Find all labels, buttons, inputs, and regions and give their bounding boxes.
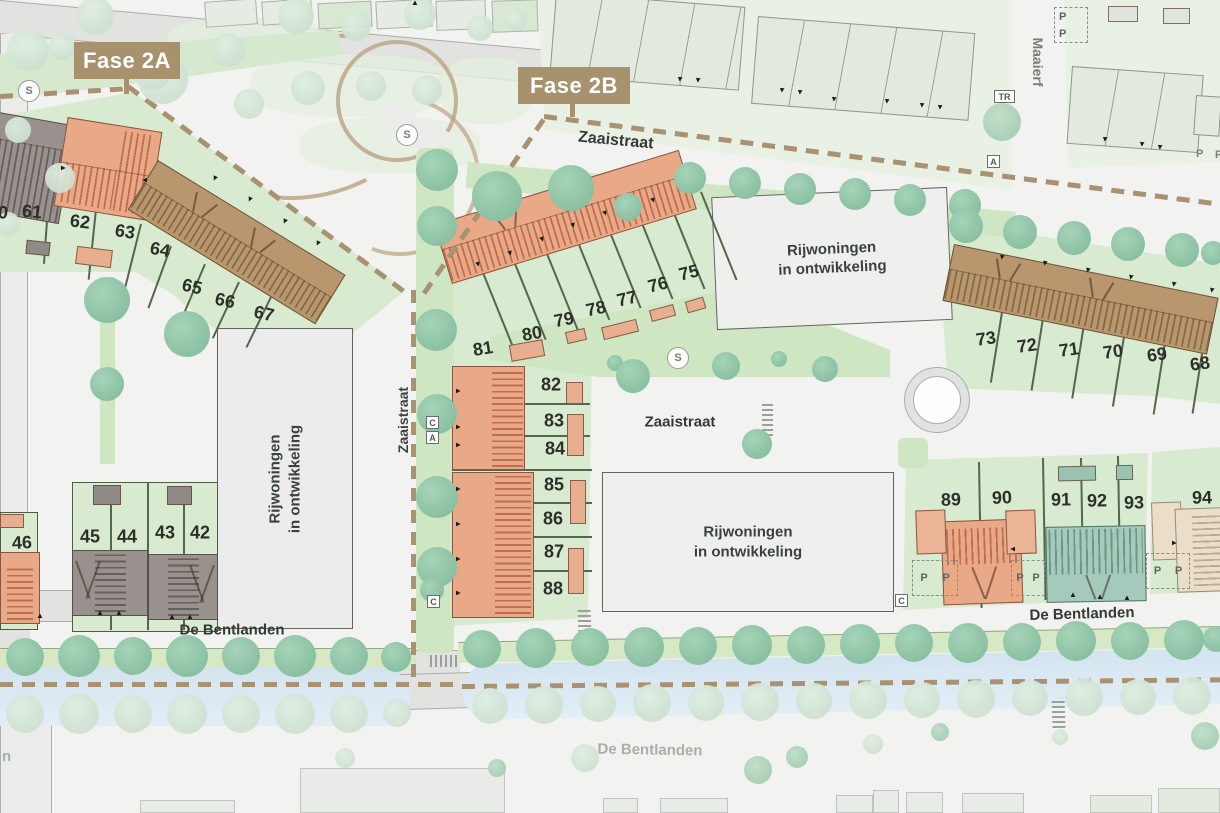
p-letter: P [920, 572, 927, 584]
phase-boundary-dashed [411, 290, 416, 686]
entrance-arrow-icon: ▲ [1169, 279, 1178, 288]
tree-icon [784, 173, 816, 205]
garden-shed [25, 240, 50, 256]
tree-icon [571, 744, 599, 772]
tree-icon [114, 695, 152, 733]
tree-icon [275, 694, 315, 734]
tree-icon [114, 637, 152, 675]
p-letter: P [1154, 565, 1161, 577]
building-parcel-lines [1194, 96, 1220, 136]
tree-icon [222, 695, 260, 733]
development-label-line1: Rijwoningen [694, 523, 802, 543]
existing-building [1193, 95, 1220, 137]
entrance-arrow-icon: ▲ [883, 97, 892, 106]
faded-building [140, 800, 235, 813]
entrance-arrow-icon: ▲ [796, 88, 805, 97]
tree-icon [167, 694, 207, 734]
entrance-arrow-icon: ▲ [454, 387, 462, 395]
fase-2b-badge: Fase 2B [518, 67, 630, 104]
plot-number[interactable]: 83 [544, 411, 564, 432]
tree-icon [488, 759, 506, 777]
garden-shed [570, 480, 586, 524]
plot-number[interactable]: 85 [544, 475, 564, 496]
plot-number[interactable]: 46 [12, 532, 33, 554]
roof-hatch [492, 369, 523, 467]
building-parcel-lines [1068, 67, 1203, 152]
tree-icon [416, 476, 458, 518]
letter-marker-C: C [895, 594, 908, 607]
tree-icon [274, 635, 316, 677]
house-roof [148, 554, 218, 620]
parking-p-box: PP [1146, 553, 1190, 589]
plot-number[interactable]: 71 [1058, 338, 1081, 362]
roof-gable-line [192, 192, 197, 212]
tree-icon [383, 699, 411, 727]
entrance-arrow-icon: ▲ [168, 613, 176, 621]
tree-icon [729, 167, 761, 199]
plot-number[interactable]: 90 [992, 487, 1013, 509]
entrance-arrow-icon: ▲ [59, 164, 67, 172]
development-label-line2: in ontwikkeling [285, 424, 305, 532]
letter-marker-A: A [426, 431, 439, 444]
tree-icon [948, 623, 988, 663]
p-letter: P [942, 572, 949, 584]
entrance-arrow-icon: ▲ [454, 423, 462, 431]
garden-shed [93, 485, 121, 505]
tree-icon [742, 429, 772, 459]
development-area-left: Rijwoningen in ontwikkeling [217, 328, 353, 629]
tree-icon [59, 694, 99, 734]
s-marker: S [396, 124, 418, 146]
tree-icon [712, 352, 740, 380]
entrance-arrow-icon: ▲ [694, 76, 703, 85]
faded-building [962, 793, 1024, 813]
p-letter: P [1016, 572, 1023, 584]
house-roof [915, 509, 947, 554]
plot-number[interactable]: 72 [1016, 334, 1039, 358]
roof-hatch [1048, 528, 1143, 574]
entrance-arrow-icon: ▲ [36, 612, 44, 620]
tree-icon [679, 627, 717, 665]
development-area-left-label: Rijwoningen in ontwikkeling [266, 424, 305, 532]
plot-number[interactable]: 89 [941, 489, 962, 511]
tree-icon [1191, 722, 1219, 750]
plot-number[interactable]: 73 [975, 327, 998, 351]
plot-number[interactable]: 80 [520, 322, 543, 346]
entrance-arrow-icon: ▲ [186, 613, 194, 621]
faded-building [603, 798, 638, 813]
entrance-arrow-icon: ▲ [778, 86, 787, 95]
tree-icon [895, 624, 933, 662]
tree-icon [6, 638, 44, 676]
plot-number[interactable]: 66 [213, 289, 237, 314]
tree-icon [957, 680, 995, 718]
entrance-arrow-icon: ▲ [454, 485, 462, 493]
development-area-top-label: Rijwoningen in ontwikkeling [777, 237, 887, 281]
plot-number[interactable]: 67 [252, 302, 276, 327]
entrance-arrow-icon: ▲ [1040, 258, 1049, 267]
plot-number[interactable]: 61 [21, 201, 43, 224]
plot-number[interactable]: 82 [541, 375, 561, 396]
development-label-line1: Rijwoningen [266, 424, 286, 532]
tree-icon [463, 630, 501, 668]
garden-shed [568, 548, 584, 594]
entrance-arrow-icon: ▲ [141, 176, 149, 184]
garden-shed [566, 382, 583, 404]
parking-p-box: PP [1011, 560, 1045, 596]
tree-icon [516, 628, 556, 668]
tree-icon [674, 162, 706, 194]
tree-icon [164, 311, 210, 357]
entrance-arrow-icon: ▲ [454, 555, 462, 563]
letter-marker-TR: TR [994, 90, 1015, 103]
entrance-arrow-icon: ▲ [411, 0, 419, 7]
tree-icon [1173, 677, 1211, 715]
tree-icon [624, 627, 664, 667]
tree-icon [5, 117, 31, 143]
tree-icon [330, 695, 368, 733]
tree-icon [58, 635, 100, 677]
tree-icon [1164, 620, 1204, 660]
street-label-maaierf: Maaierf [1030, 37, 1046, 86]
entrance-arrow-icon: ▲ [454, 520, 462, 528]
faded-building [836, 795, 873, 813]
tree-icon [1120, 679, 1156, 715]
roof-gable-line [1085, 575, 1096, 600]
development-label-line2: in ontwikkeling [694, 542, 802, 562]
existing-building [1067, 66, 1204, 153]
parking-p-box: PP [912, 560, 958, 596]
letter-marker-C: C [426, 416, 439, 429]
plot-number[interactable]: 93 [1124, 492, 1144, 513]
map-graphics-layer: ▲▲▲▲▲▲▲▲▲▲▲▲▲▲▲▲▲▲▲▲▲▲▲▲▲▲▲▲▲▲▲▲▲▲▲▲▲▲▲▲… [0, 0, 1220, 813]
entrance-arrow-icon: ▲ [1138, 140, 1147, 149]
plot-number[interactable]: 43 [155, 523, 175, 544]
tree-icon [90, 367, 124, 401]
tree-icon [894, 184, 926, 216]
tree-icon [1012, 680, 1048, 716]
roof-hatch [168, 558, 199, 616]
entrance-arrow-icon: ▲ [918, 101, 927, 110]
faded-building [1090, 795, 1152, 813]
p-letter: P [1215, 149, 1220, 161]
tree-icon [412, 75, 442, 105]
roof-gable-line [199, 565, 214, 603]
tree-icon [633, 684, 671, 722]
tree-icon [949, 209, 983, 243]
tree-icon [166, 635, 208, 677]
fase-2b-badge-label: Fase 2B [530, 73, 618, 99]
fase-2a-badge-stem [124, 79, 129, 94]
plot-number[interactable]: 69 [1146, 343, 1169, 367]
s-marker: S [18, 80, 40, 102]
plot-number[interactable]: 91 [1051, 489, 1071, 510]
development-area-bottom-label: Rijwoningen in ontwikkeling [694, 523, 802, 562]
fase-2b-badge-stem [570, 104, 575, 117]
tree-icon [1165, 233, 1199, 267]
tree-icon [571, 628, 609, 666]
tree-icon [904, 682, 940, 718]
tree-icon [688, 685, 724, 721]
garden-shed [0, 514, 24, 528]
plot-number[interactable]: 92 [1087, 490, 1107, 511]
roof-gable-line [1009, 263, 1021, 281]
tree-icon [7, 29, 49, 71]
s-marker: S [667, 347, 689, 369]
tree-icon [1052, 729, 1068, 745]
plot-number[interactable]: 68 [1189, 352, 1212, 376]
tree-icon [1056, 621, 1096, 661]
tree-icon [741, 683, 779, 721]
development-area-bottom: Rijwoningen in ontwikkeling [602, 472, 894, 612]
plot-number[interactable]: 88 [543, 579, 563, 600]
faded-building [906, 792, 943, 813]
entrance-arrow-icon: ▲ [96, 609, 104, 617]
site-plan-map: ▲▲▲▲▲▲▲▲▲▲▲▲▲▲▲▲▲▲▲▲▲▲▲▲▲▲▲▲▲▲▲▲▲▲▲▲▲▲▲▲… [0, 0, 1220, 813]
roof-gable-line [1089, 278, 1093, 298]
tree-icon [1003, 623, 1041, 661]
entrance-arrow-icon: ▲ [1069, 591, 1077, 599]
plot-number[interactable]: 94 [1192, 487, 1212, 508]
tree-icon [48, 32, 76, 60]
tree-icon [472, 688, 508, 724]
p-letter: P [1196, 148, 1203, 160]
tree-icon [983, 103, 1021, 141]
faded-building [300, 768, 505, 813]
roof-gable-line [201, 204, 218, 218]
tree-icon [467, 15, 493, 41]
tree-icon [1003, 215, 1037, 249]
road-maaierf [0, 722, 52, 813]
plot-number[interactable]: 77 [615, 287, 639, 312]
tree-icon [1201, 241, 1220, 265]
faded-parcel [204, 0, 258, 28]
plot-number[interactable]: 79 [552, 308, 576, 332]
p-letter: P [1059, 11, 1066, 23]
tree-icon [548, 165, 594, 211]
faded-building [660, 798, 728, 813]
roof-gable-line [250, 227, 255, 247]
garden-shed [1058, 466, 1096, 482]
tree-icon [525, 686, 563, 724]
tree-icon [416, 149, 458, 191]
plot-number[interactable]: 45 [80, 527, 100, 548]
garden-shed [167, 486, 192, 505]
tree-icon [771, 351, 787, 367]
garden-shed [567, 414, 584, 456]
plot-number[interactable]: 86 [543, 509, 563, 530]
faded-building [1158, 788, 1220, 813]
house-roof [0, 552, 40, 624]
street-label-zaaistraat-vertical: Zaaistraat [395, 387, 411, 453]
entrance-arrow-icon: ▲ [1123, 594, 1131, 602]
p-letter: P [1032, 572, 1039, 584]
entrance-arrow-icon: ▲ [1083, 265, 1092, 274]
tree-icon [335, 748, 355, 768]
entrance-arrow-icon: ▲ [1207, 285, 1216, 294]
entrance-arrow-icon: ▲ [936, 103, 945, 112]
entrance-arrow-icon: ▲ [1101, 135, 1110, 144]
garden-shed [1108, 6, 1138, 22]
tree-icon [812, 356, 838, 382]
tree-icon [614, 193, 642, 221]
tree-icon [356, 71, 386, 101]
roof-gable-line [971, 567, 985, 599]
tree-icon [222, 637, 260, 675]
turning-circle [913, 376, 961, 424]
tree-icon [211, 33, 245, 67]
tree-icon [505, 9, 527, 31]
fase-2a-badge-label: Fase 2A [83, 48, 171, 74]
letter-marker-A: A [987, 155, 1000, 168]
tree-icon [6, 695, 44, 733]
entrance-arrow-icon: ▲ [830, 95, 839, 104]
roof-hatch [495, 476, 532, 614]
plot-number[interactable]: 81 [471, 337, 494, 361]
street-label-fragment: n [2, 748, 11, 765]
faded-building [873, 790, 899, 813]
entrance-arrow-icon: ▲ [454, 441, 462, 449]
plot-number[interactable]: 70 [1102, 340, 1125, 364]
entrance-arrow-icon: ▲ [676, 75, 685, 84]
parking-p-box: PP [1054, 7, 1088, 43]
tree-icon [744, 756, 772, 784]
tree-icon [931, 723, 949, 741]
street-label-de-bentlanden-left: De Bentlanden [179, 622, 284, 639]
house-roof [452, 366, 525, 470]
plot-number[interactable]: 78 [584, 297, 608, 322]
tree-icon [84, 277, 130, 323]
entrance-arrow-icon: ▲ [1126, 272, 1135, 281]
tree-icon [787, 626, 825, 664]
entrance-arrow-icon: ▲ [1156, 143, 1165, 152]
street-label-zaaistraat-mid: Zaaistraat [645, 414, 716, 431]
tree-icon [1057, 221, 1091, 255]
p-letter: P [1175, 565, 1182, 577]
tree-icon [234, 89, 264, 119]
tree-icon [840, 624, 880, 664]
tree-icon [1111, 622, 1149, 660]
tree-icon [839, 178, 871, 210]
street-label-de-bentlanden-south: De Bentlanden [597, 741, 702, 760]
tree-icon [863, 734, 883, 754]
tree-icon [472, 171, 522, 221]
p-letter: P [1059, 28, 1066, 40]
tree-icon [1065, 678, 1103, 716]
street-label-de-bentlanden-right: De Bentlanden [1029, 604, 1134, 624]
development-label-line2: in ontwikkeling [778, 256, 887, 280]
entrance-arrow-icon: ▲ [454, 589, 462, 597]
plot-number[interactable]: 87 [544, 542, 564, 563]
entrance-arrow-icon: ▲ [1009, 545, 1017, 553]
tree-icon [616, 359, 650, 393]
roof-gable-line [1102, 282, 1114, 300]
plot-number[interactable]: 64 [148, 238, 172, 262]
tree-icon [849, 681, 887, 719]
plot-number[interactable]: 63 [113, 220, 136, 244]
fase-2a-badge: Fase 2A [74, 42, 180, 79]
plot-number[interactable]: 42 [190, 523, 210, 544]
entrance-arrow-icon: ▲ [1170, 539, 1178, 547]
entrance-arrow-icon: ▲ [1096, 593, 1104, 601]
tree-icon [732, 625, 772, 665]
letter-marker-C: C [427, 595, 440, 608]
house-roof [72, 550, 148, 616]
crosswalk [1051, 698, 1065, 728]
tree-icon [796, 683, 832, 719]
tree-icon [786, 746, 808, 768]
tree-icon [415, 309, 457, 351]
garden-shed [1116, 465, 1133, 480]
tree-icon [341, 11, 371, 41]
tree-icon [381, 642, 411, 672]
roof-hatch [1192, 513, 1220, 586]
roof-gable-line [259, 239, 276, 253]
roof-gable-line [985, 566, 997, 599]
house-roof [452, 472, 534, 618]
roof-hatch [7, 567, 34, 620]
crosswalk [430, 655, 458, 667]
tree-icon [291, 71, 325, 105]
garden-shed [1163, 8, 1190, 24]
tree-icon [330, 637, 368, 675]
plot-number[interactable]: 62 [69, 210, 91, 233]
phase-boundary-dashed [0, 682, 462, 687]
plot-number[interactable]: 44 [117, 527, 137, 548]
entrance-arrow-icon: ▲ [997, 252, 1006, 261]
tree-icon [580, 686, 616, 722]
plot-number[interactable]: 84 [545, 439, 565, 460]
tree-icon [1111, 227, 1145, 261]
verge-mid-east [898, 438, 928, 468]
tree-icon [417, 206, 457, 246]
entrance-arrow-icon: ▲ [115, 609, 123, 617]
